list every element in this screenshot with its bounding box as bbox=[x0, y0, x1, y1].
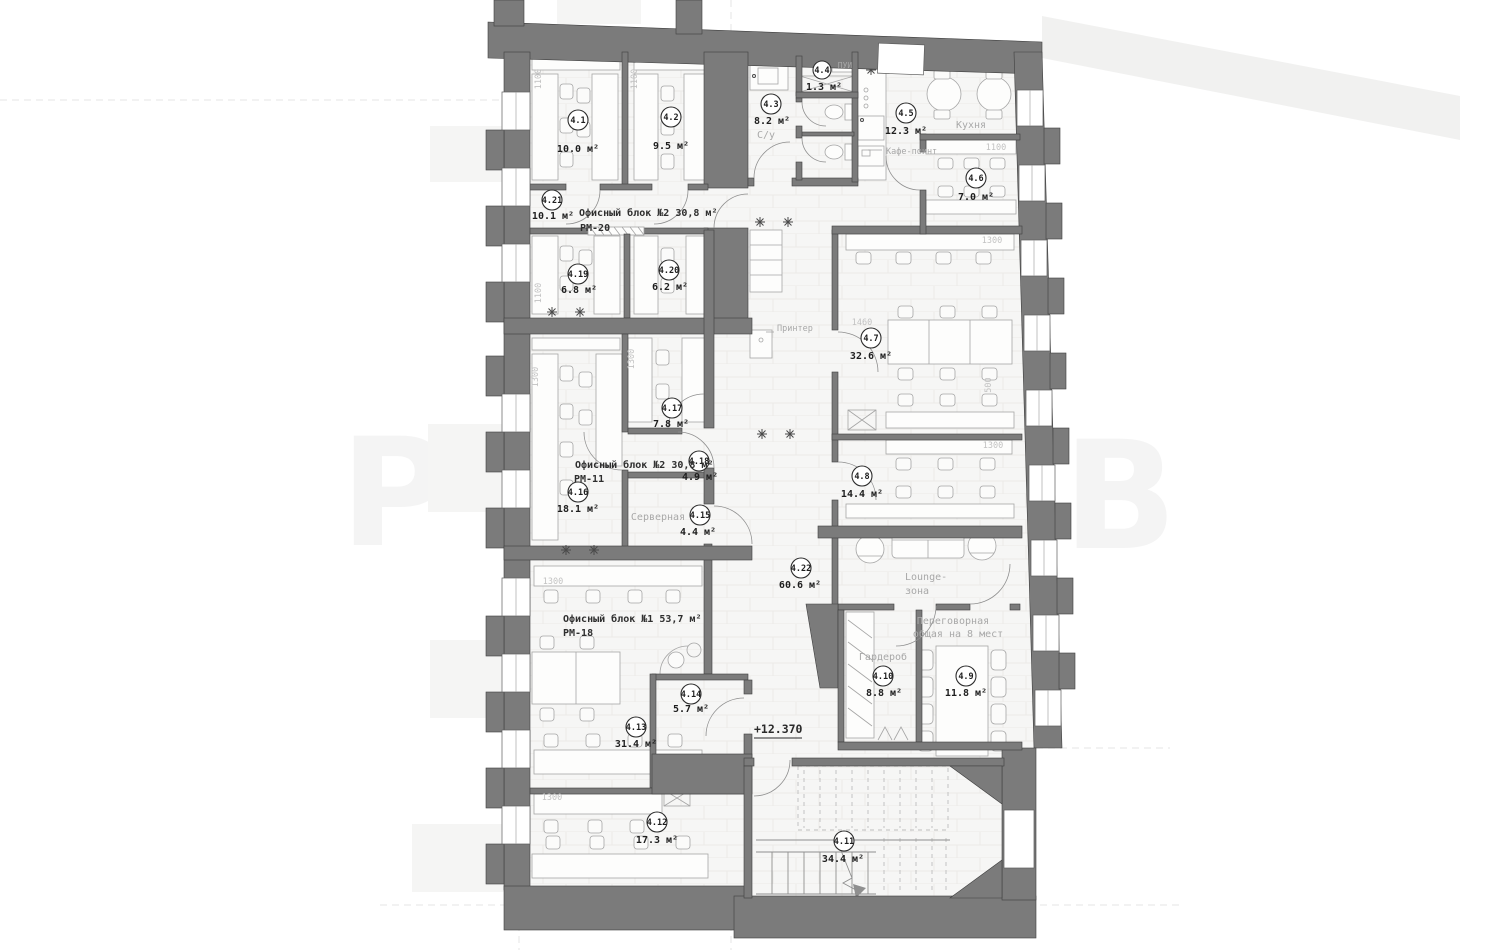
wall-band-1 bbox=[504, 318, 752, 334]
svg-text:4.2: 4.2 bbox=[663, 113, 678, 123]
room-marker-4-7: 4.7 bbox=[861, 328, 881, 348]
dim-500: 500 bbox=[984, 377, 994, 392]
room-area-4-9: 11.8 м² bbox=[945, 688, 987, 699]
room-marker-4-13: 4.13 bbox=[626, 717, 646, 737]
room-area-4-17: 7.8 м² bbox=[653, 419, 689, 430]
wall-band-3 bbox=[818, 526, 1022, 538]
room-area-4-14: 5.7 м² bbox=[673, 704, 709, 715]
wall-bottom-stairs bbox=[734, 896, 1036, 938]
dim-1300-f: 1300 bbox=[542, 793, 562, 803]
svg-text:4.5: 4.5 bbox=[898, 109, 913, 119]
room-area-4-15: 4.4 м² bbox=[680, 527, 716, 538]
room-marker-4-17: 4.17 bbox=[662, 398, 682, 418]
roof-projection bbox=[1042, 16, 1460, 140]
svg-text:4.11: 4.11 bbox=[834, 837, 854, 847]
window-stairs bbox=[1004, 810, 1034, 868]
block-label-1-title: Офисный блок №2 30,8 м² bbox=[579, 207, 717, 219]
wall-band-2 bbox=[504, 546, 752, 560]
room-name-4-9-line2: общая на 8 мест bbox=[913, 628, 1003, 640]
room-name-4-5: Кухня bbox=[956, 120, 986, 131]
block-label-3-title: Офисный блок №1 53,7 м² bbox=[563, 613, 701, 625]
room-marker-4-19: 4.19 bbox=[568, 264, 588, 284]
dim-1460: 1460 bbox=[852, 318, 872, 328]
dim-1100-a: 1100 bbox=[534, 69, 544, 89]
window-top bbox=[877, 43, 924, 75]
block-label-2-sub: РМ-11 bbox=[574, 474, 604, 485]
armchair bbox=[856, 535, 884, 563]
svg-text:4.1: 4.1 bbox=[570, 116, 585, 126]
svg-text:4.10: 4.10 bbox=[873, 672, 893, 682]
dim-1100-d: 1100 bbox=[986, 143, 1006, 153]
room-marker-4-15: 4.15 bbox=[690, 505, 710, 525]
svg-text:4.6: 4.6 bbox=[968, 174, 983, 184]
room-area-4-18: 4.9 м² bbox=[682, 472, 718, 483]
room-marker-4-2: 4.2 bbox=[661, 107, 681, 127]
dim-1300-d: 1300 bbox=[983, 441, 1003, 451]
room-area-4-5: 12.3 м² bbox=[885, 126, 927, 137]
lounge-label-line2: зона bbox=[905, 586, 929, 597]
room-area-4-21: 10.1 м² bbox=[532, 211, 574, 222]
room-marker-4-8: 4.8 bbox=[852, 466, 872, 486]
block-label-1-sub: РМ-20 bbox=[580, 223, 610, 234]
room-area-4-12: 17.3 м² bbox=[636, 835, 678, 846]
svg-text:4.8: 4.8 bbox=[854, 472, 869, 482]
room-marker-4-11: 4.11 bbox=[834, 831, 854, 851]
room-marker-4-9: 4.9 bbox=[956, 666, 976, 686]
printer-label: Принтер bbox=[777, 324, 813, 334]
svg-text:4.19: 4.19 bbox=[568, 270, 588, 280]
dim-1100-b: 1100 bbox=[630, 69, 640, 89]
room-area-4-13: 31.4 м² bbox=[615, 739, 657, 750]
room-name-4-4: ПУИ bbox=[838, 61, 853, 70]
floor-plan-drawing: Р В bbox=[0, 0, 1500, 950]
room-area-4-8: 14.4 м² bbox=[841, 489, 883, 500]
room-marker-4-6: 4.6 bbox=[966, 168, 986, 188]
room-marker-4-12: 4.12 bbox=[647, 812, 667, 832]
room-name-4-3: С/у bbox=[757, 130, 775, 141]
room-area-4-11: 34.4 м² bbox=[822, 854, 864, 865]
wall-room47-top bbox=[832, 226, 1022, 234]
dim-1300-e: 1300 bbox=[543, 577, 563, 587]
room-area-4-19: 6.8 м² bbox=[561, 285, 597, 296]
svg-text:4.9: 4.9 bbox=[958, 672, 973, 682]
room-area-4-1: 10.0 м² bbox=[557, 144, 599, 155]
svg-text:4.14: 4.14 bbox=[681, 690, 701, 700]
room-name-4-15: Серверная bbox=[631, 512, 685, 523]
wall-bottom-left bbox=[504, 886, 746, 930]
room-name-4-10: Гардероб bbox=[859, 651, 907, 663]
dim-1300-c: 1300 bbox=[982, 236, 1002, 246]
room-area-4-10: 8.8 м² bbox=[866, 688, 902, 699]
room-marker-4-4: 4.4 bbox=[813, 61, 831, 79]
cafe-point-label: Кафе-поинт bbox=[886, 147, 937, 157]
room-marker-4-16: 4.16 bbox=[568, 482, 588, 502]
level-mark: +12.370 bbox=[754, 722, 803, 736]
room-marker-4-5: 4.5 bbox=[896, 103, 916, 123]
room-marker-4-22: 4.22 bbox=[791, 558, 811, 578]
room-marker-4-20: 4.20 bbox=[659, 260, 679, 280]
room-area-4-3: 8.2 м² bbox=[754, 116, 790, 127]
svg-text:4.12: 4.12 bbox=[647, 818, 667, 828]
room-area-4-22: 60.6 м² bbox=[779, 580, 821, 591]
room-marker-4-1: 4.1 bbox=[568, 110, 588, 130]
svg-text:4.20: 4.20 bbox=[659, 266, 679, 276]
room-marker-4-14: 4.14 bbox=[681, 684, 701, 704]
room-area-4-20: 6.2 м² bbox=[652, 282, 688, 293]
svg-text:4.22: 4.22 bbox=[791, 564, 811, 574]
svg-text:4.17: 4.17 bbox=[662, 404, 682, 414]
floor-plan-canvas: Р В bbox=[0, 0, 1500, 950]
kitchen-counter bbox=[856, 56, 886, 180]
svg-text:4.15: 4.15 bbox=[690, 511, 710, 521]
room-area-4-6: 7.0 м² bbox=[958, 192, 994, 203]
dim-1300-a: 1300 bbox=[531, 367, 541, 387]
room-marker-4-10: 4.10 bbox=[873, 666, 893, 686]
projection-top bbox=[557, 0, 641, 24]
room-area-4-2: 9.5 м² bbox=[653, 141, 689, 152]
printer bbox=[750, 330, 772, 358]
svg-text:4.13: 4.13 bbox=[626, 723, 646, 733]
core-wall-top bbox=[704, 52, 748, 188]
room-area-4-16: 18.1 м² bbox=[557, 504, 599, 515]
svg-text:4.21: 4.21 bbox=[542, 196, 562, 206]
svg-text:4.3: 4.3 bbox=[763, 100, 778, 110]
room-marker-4-3: 4.3 bbox=[761, 94, 781, 114]
block-label-2-title: Офисный блок №2 30,8 м² bbox=[575, 459, 713, 471]
corridor-lockers bbox=[750, 230, 782, 292]
svg-text:4.7: 4.7 bbox=[863, 334, 878, 344]
room-area-4-7: 32.6 м² bbox=[850, 351, 892, 362]
svg-text:4.16: 4.16 bbox=[568, 488, 588, 498]
svg-text:4.4: 4.4 bbox=[814, 66, 829, 76]
room-area-4-4: 1.3 м² bbox=[806, 82, 842, 93]
watermark-letter-right: В bbox=[1063, 410, 1177, 584]
room-marker-4-21: 4.21 bbox=[542, 190, 562, 210]
dim-1100-c: 1100 bbox=[534, 283, 544, 303]
lounge-label-line1: Lounge- bbox=[905, 572, 947, 583]
block-label-3-sub: РМ-18 bbox=[563, 628, 593, 639]
room-name-4-9-line1: Переговорная bbox=[917, 616, 989, 627]
dim-1300-b: 1300 bbox=[627, 349, 637, 369]
